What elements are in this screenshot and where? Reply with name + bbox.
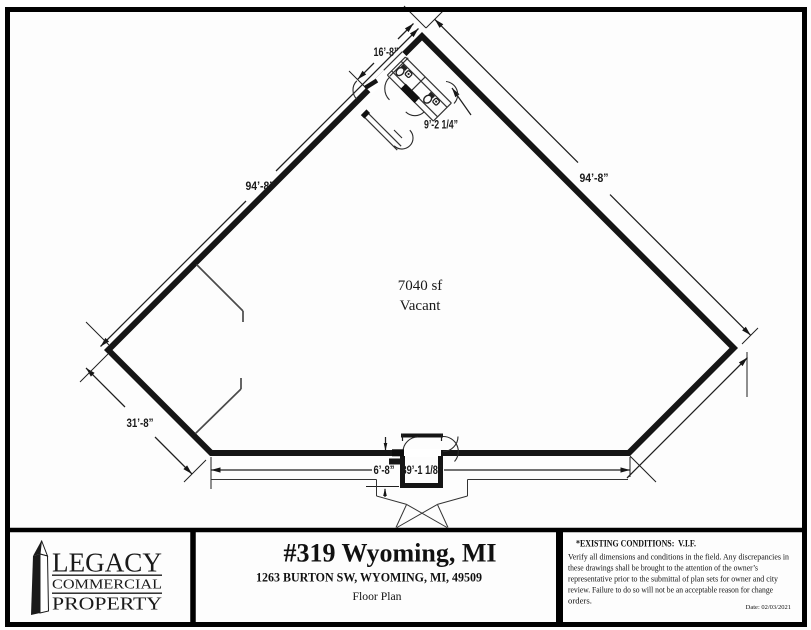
svg-text:94’-8”: 94’-8” — [580, 171, 609, 185]
svg-text:9’-2 1/4”: 9’-2 1/4” — [424, 120, 458, 132]
svg-text:Date: 02/03/2021: Date: 02/03/2021 — [746, 604, 791, 611]
svg-text:*EXISTING CONDITIONS: V.I.F.: *EXISTING CONDITIONS: V.I.F. — [576, 539, 696, 549]
svg-text:COMMERCIAL: COMMERCIAL — [52, 577, 162, 592]
svg-text:89’-1 1/8”: 89’-1 1/8” — [402, 465, 443, 477]
svg-text:Floor Plan: Floor Plan — [353, 589, 402, 603]
svg-text:PROPERTY: PROPERTY — [52, 594, 162, 614]
svg-text:16’-8”: 16’-8” — [374, 47, 399, 59]
svg-text:LEGACY: LEGACY — [52, 547, 162, 578]
svg-text:review. Failure to do so will: review. Failure to do so will not be an … — [568, 585, 773, 595]
svg-text:31’-8”: 31’-8” — [127, 416, 154, 430]
svg-text:94’-8”: 94’-8” — [246, 179, 275, 193]
svg-text:these drawings shall be brough: these drawings shall be brought to the a… — [568, 563, 759, 573]
svg-text:orders.: orders. — [568, 596, 592, 606]
svg-text:7040 sf: 7040 sf — [398, 278, 443, 294]
svg-text:representative prior to the su: representative prior to the submittal of… — [568, 574, 779, 584]
svg-text:Vacant: Vacant — [400, 298, 442, 314]
svg-text:#319 Wyoming, MI: #319 Wyoming, MI — [283, 539, 496, 568]
svg-text:1263 BURTON SW, WYOMING, MI, 4: 1263 BURTON SW, WYOMING, MI, 49509 — [256, 570, 482, 585]
svg-text:6’-8”: 6’-8” — [374, 465, 395, 477]
svg-text:Verify all dimensions and cond: Verify all dimensions and conditions in … — [568, 552, 790, 562]
